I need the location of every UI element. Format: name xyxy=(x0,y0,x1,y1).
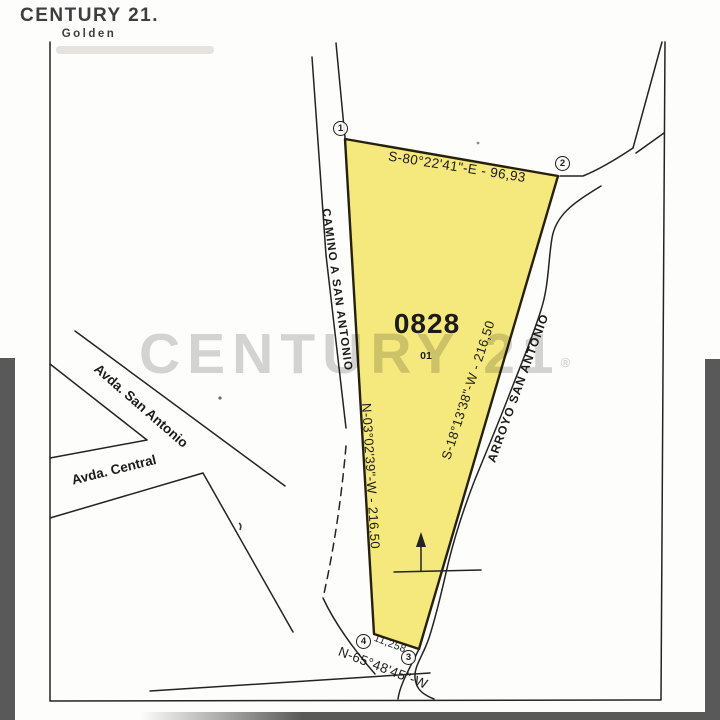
scan-edge-bar-bottom xyxy=(140,712,720,720)
corner-marker-2: 2 xyxy=(555,156,570,171)
corner-marker-4: 4 xyxy=(356,634,371,649)
scan-speck-1 xyxy=(218,396,221,399)
corner-marker-1: 1 xyxy=(333,121,348,136)
ne-road-junction xyxy=(560,148,633,176)
scan-edge-bar-left xyxy=(0,358,15,720)
registered-mark: ® xyxy=(561,355,571,370)
ne-road-edge-2 xyxy=(636,133,664,153)
camino-west-edge-dashed xyxy=(323,446,346,598)
century21-watermark: CENTURY 21® xyxy=(139,326,570,383)
scan-smudge xyxy=(56,46,214,54)
corner-marker-3: 3 xyxy=(401,650,416,665)
avda-central-edge xyxy=(50,473,293,632)
parcel-polygon xyxy=(345,139,558,649)
parcel-sub-number: 01 xyxy=(420,351,432,362)
scanned-survey-plat: CENTURY 21. Golden xyxy=(0,0,720,720)
scan-speck-3 xyxy=(239,523,241,530)
parcel-number: 0828 xyxy=(394,310,460,338)
ne-road-edge-1 xyxy=(633,42,662,148)
scan-speck-2 xyxy=(477,142,480,145)
scan-edge-bar-right xyxy=(705,359,720,720)
